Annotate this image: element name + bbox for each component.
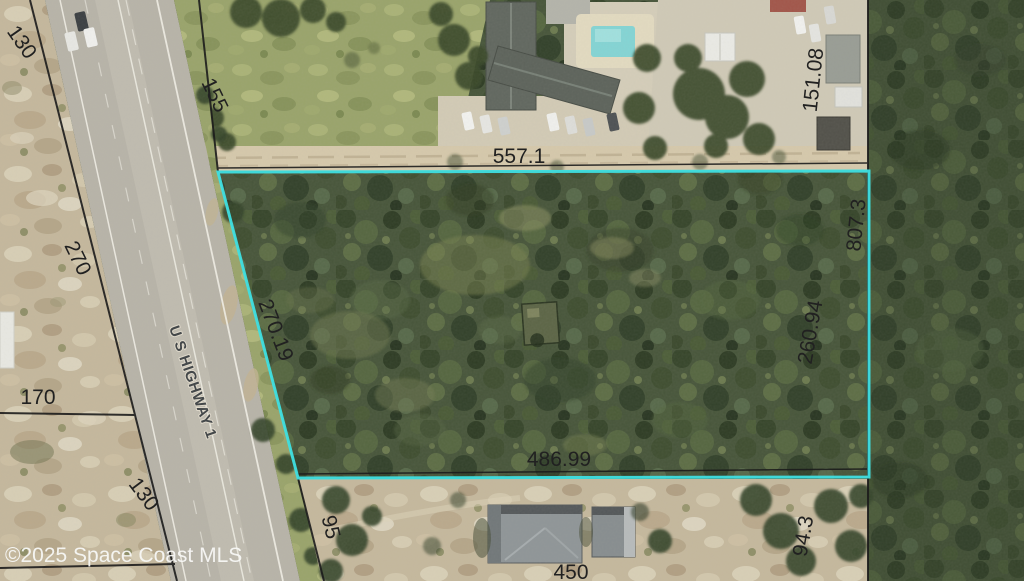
parcel-map-svg: 130 155 270 170 130 95 557.1 151.08 807.… (0, 0, 1024, 581)
dim-label-450: 450 (553, 561, 588, 581)
dim-label-486-99: 486.99 (527, 448, 591, 471)
mls-watermark: ©2025 Space Coast MLS (5, 544, 242, 567)
aerial-parcel-photo: 130 155 270 170 130 95 557.1 151.08 807.… (0, 0, 1024, 581)
dim-label-557-1: 557.1 (493, 145, 546, 168)
dim-label-170: 170 (20, 386, 55, 409)
